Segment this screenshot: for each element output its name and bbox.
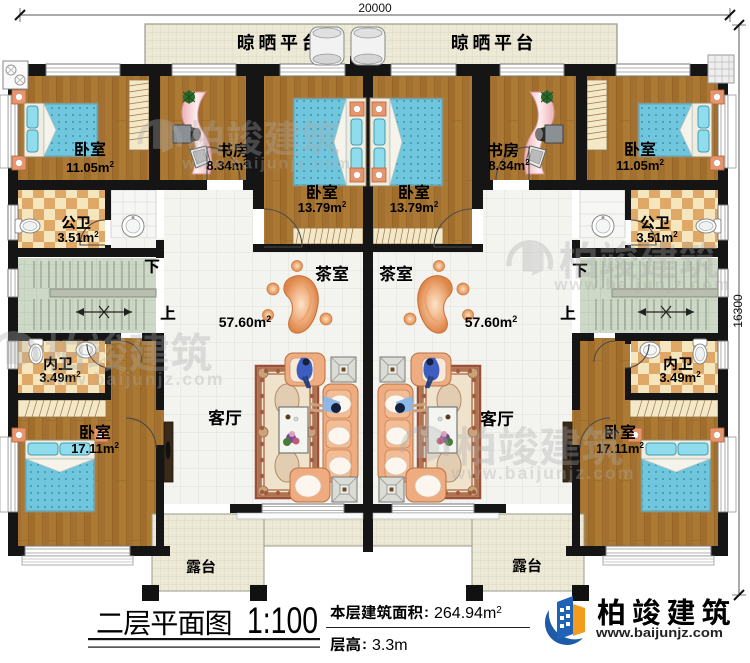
svg-text:www.baijunjz.com: www.baijunjz.com [553, 275, 731, 294]
svg-text:20000: 20000 [358, 1, 392, 15]
svg-text:13.79m2: 13.79m2 [298, 200, 347, 215]
svg-text:3.51m2: 3.51m2 [57, 230, 99, 245]
svg-text:1:100: 1:100 [247, 600, 318, 641]
svg-text:www.baijunjz.com: www.baijunjz.com [450, 463, 635, 483]
svg-text:11.05m2: 11.05m2 [66, 160, 114, 175]
svg-text:3.49m2: 3.49m2 [659, 370, 701, 385]
svg-text:17.11m2: 17.11m2 [71, 441, 119, 456]
svg-text::: : [362, 636, 367, 653]
svg-text:3.3m: 3.3m [372, 637, 408, 654]
svg-text::: : [424, 604, 429, 621]
svg-text:13.79m2: 13.79m2 [390, 200, 439, 215]
svg-text:264.94m2: 264.94m2 [434, 605, 502, 622]
svg-text:www.baijunjz.com: www.baijunjz.com [39, 369, 224, 389]
svg-text:www.baijunjz.com: www.baijunjz.com [595, 626, 723, 640]
svg-text:8.34m2: 8.34m2 [488, 158, 530, 173]
svg-text:3.51m2: 3.51m2 [636, 230, 678, 245]
svg-text:11.05m2: 11.05m2 [616, 158, 664, 173]
svg-text:57.60m2: 57.60m2 [465, 314, 518, 330]
svg-text:www.baijunjz.com: www.baijunjz.com [181, 155, 352, 172]
svg-text:16300: 16300 [731, 294, 745, 328]
svg-text:57.60m2: 57.60m2 [219, 314, 272, 330]
